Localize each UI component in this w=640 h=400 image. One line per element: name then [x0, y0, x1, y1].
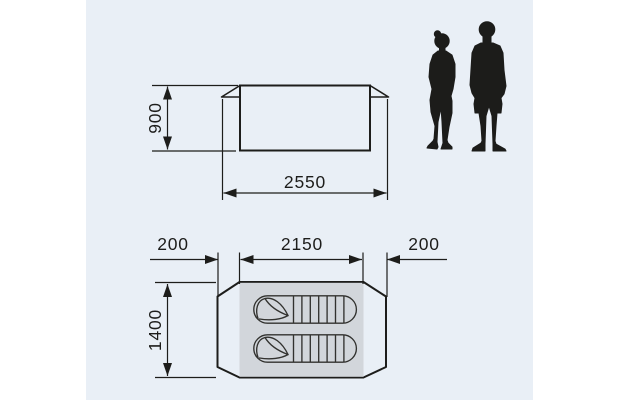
floor-plan-view — [218, 282, 387, 378]
dimension-label-width: 2550 — [284, 172, 326, 192]
dimension-label-left-porch: 200 — [157, 234, 189, 254]
diagram-canvas: 900 2550 200 2150 200 1400 — [0, 0, 640, 400]
dimension-label-right-porch: 200 — [408, 234, 440, 254]
dimension-label-height: 900 — [145, 102, 165, 134]
dimension-label-inner-length: 2150 — [281, 234, 323, 254]
dimension-label-depth: 1400 — [145, 309, 165, 351]
tent-dimension-diagram: 900 2550 200 2150 200 1400 — [0, 0, 640, 400]
